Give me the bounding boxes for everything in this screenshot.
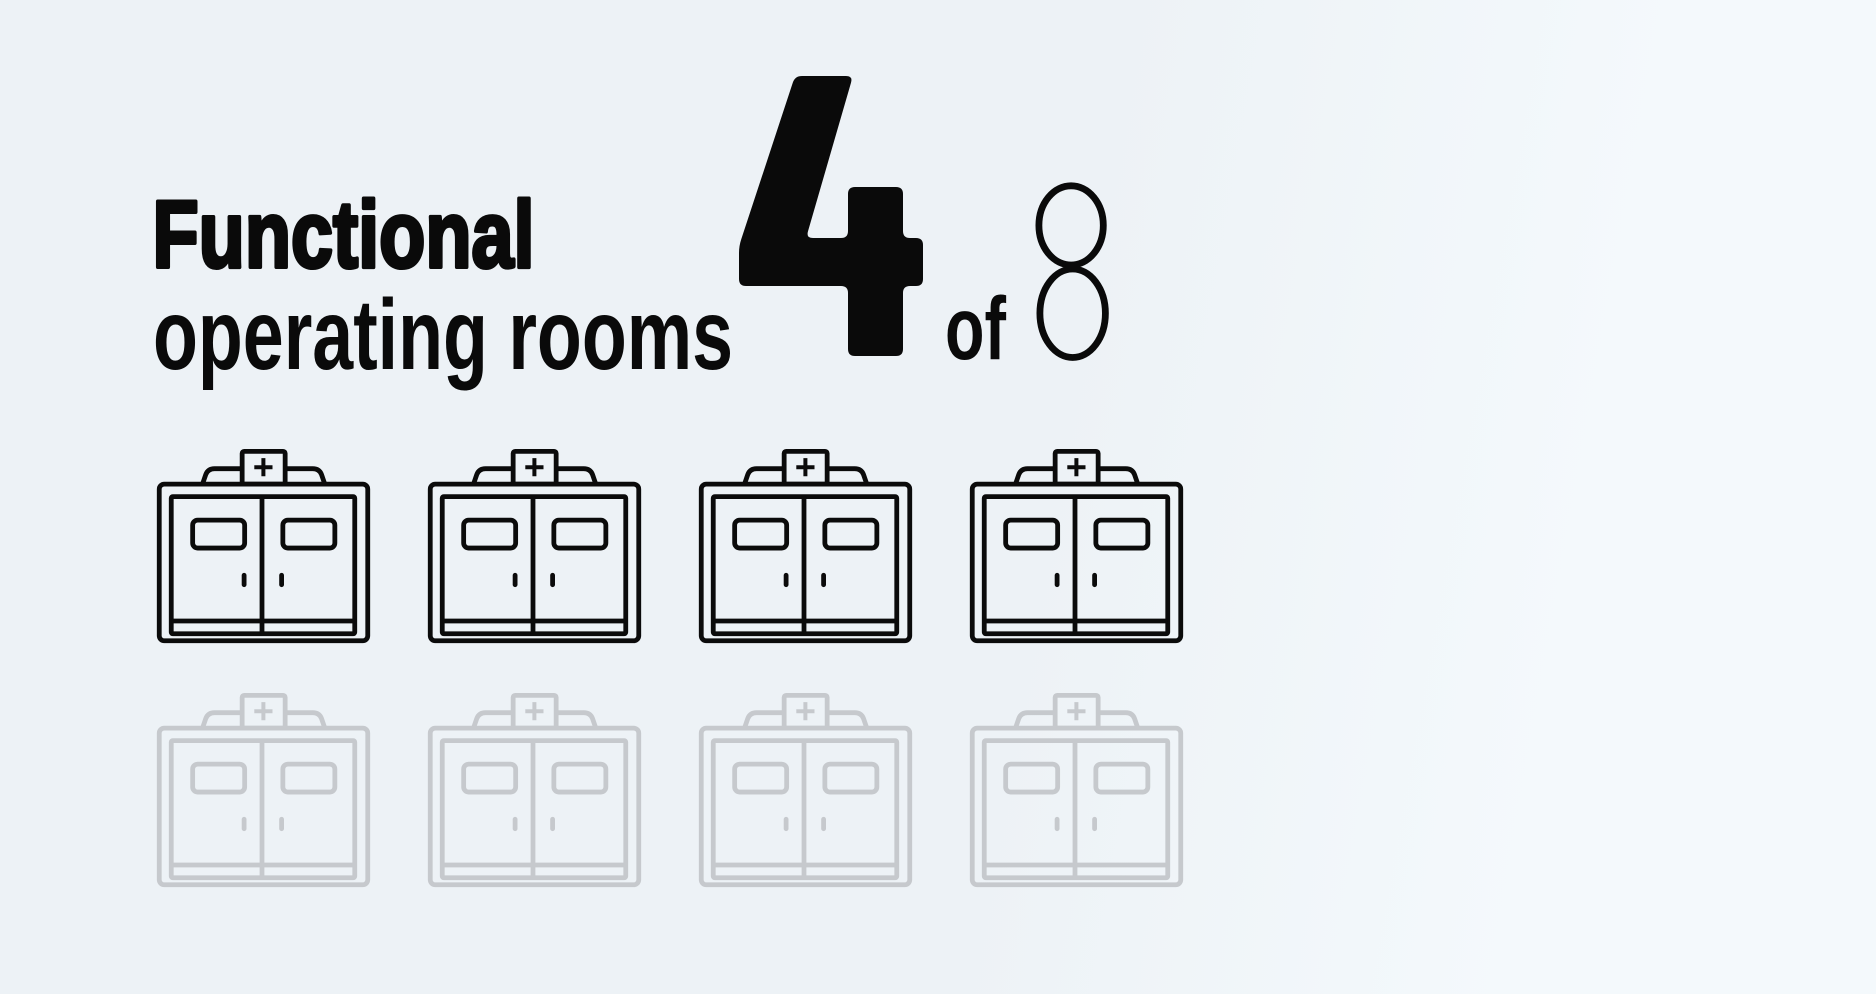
svg-text:Functional: Functional <box>153 182 535 288</box>
svg-text:operating rooms: operating rooms <box>153 279 733 391</box>
svg-text:of: of <box>945 278 1006 378</box>
